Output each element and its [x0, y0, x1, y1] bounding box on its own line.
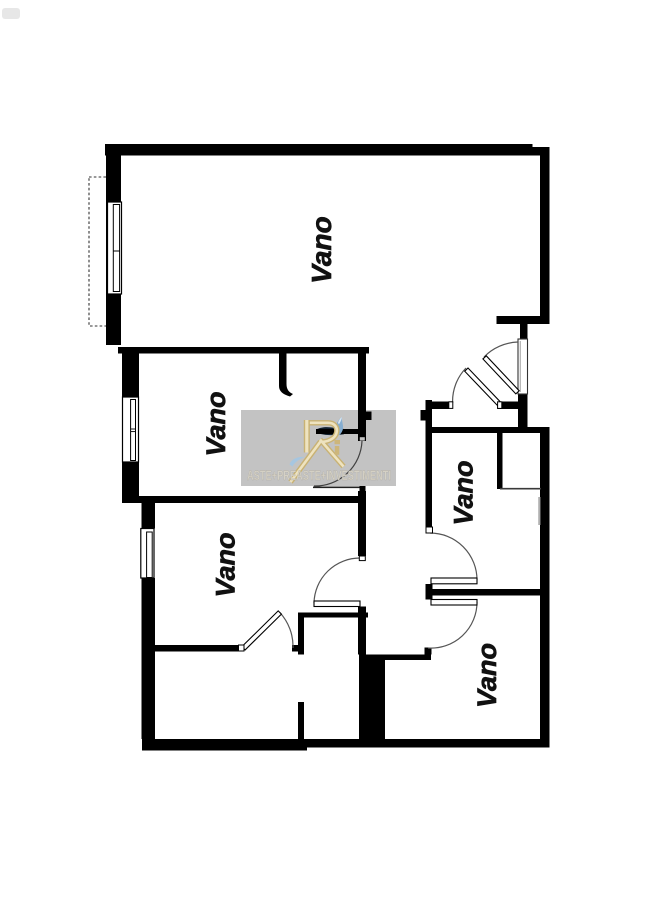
svg-text:Vano: Vano [211, 532, 241, 597]
svg-text:Vano: Vano [472, 643, 502, 708]
svg-text:Vano: Vano [306, 216, 337, 283]
svg-text:ASTE+PREASTE+INVESTIMENTI: ASTE+PREASTE+INVESTIMENTI [247, 468, 391, 483]
svg-text:Vano: Vano [201, 391, 231, 456]
svg-text:Vano: Vano [449, 460, 479, 525]
